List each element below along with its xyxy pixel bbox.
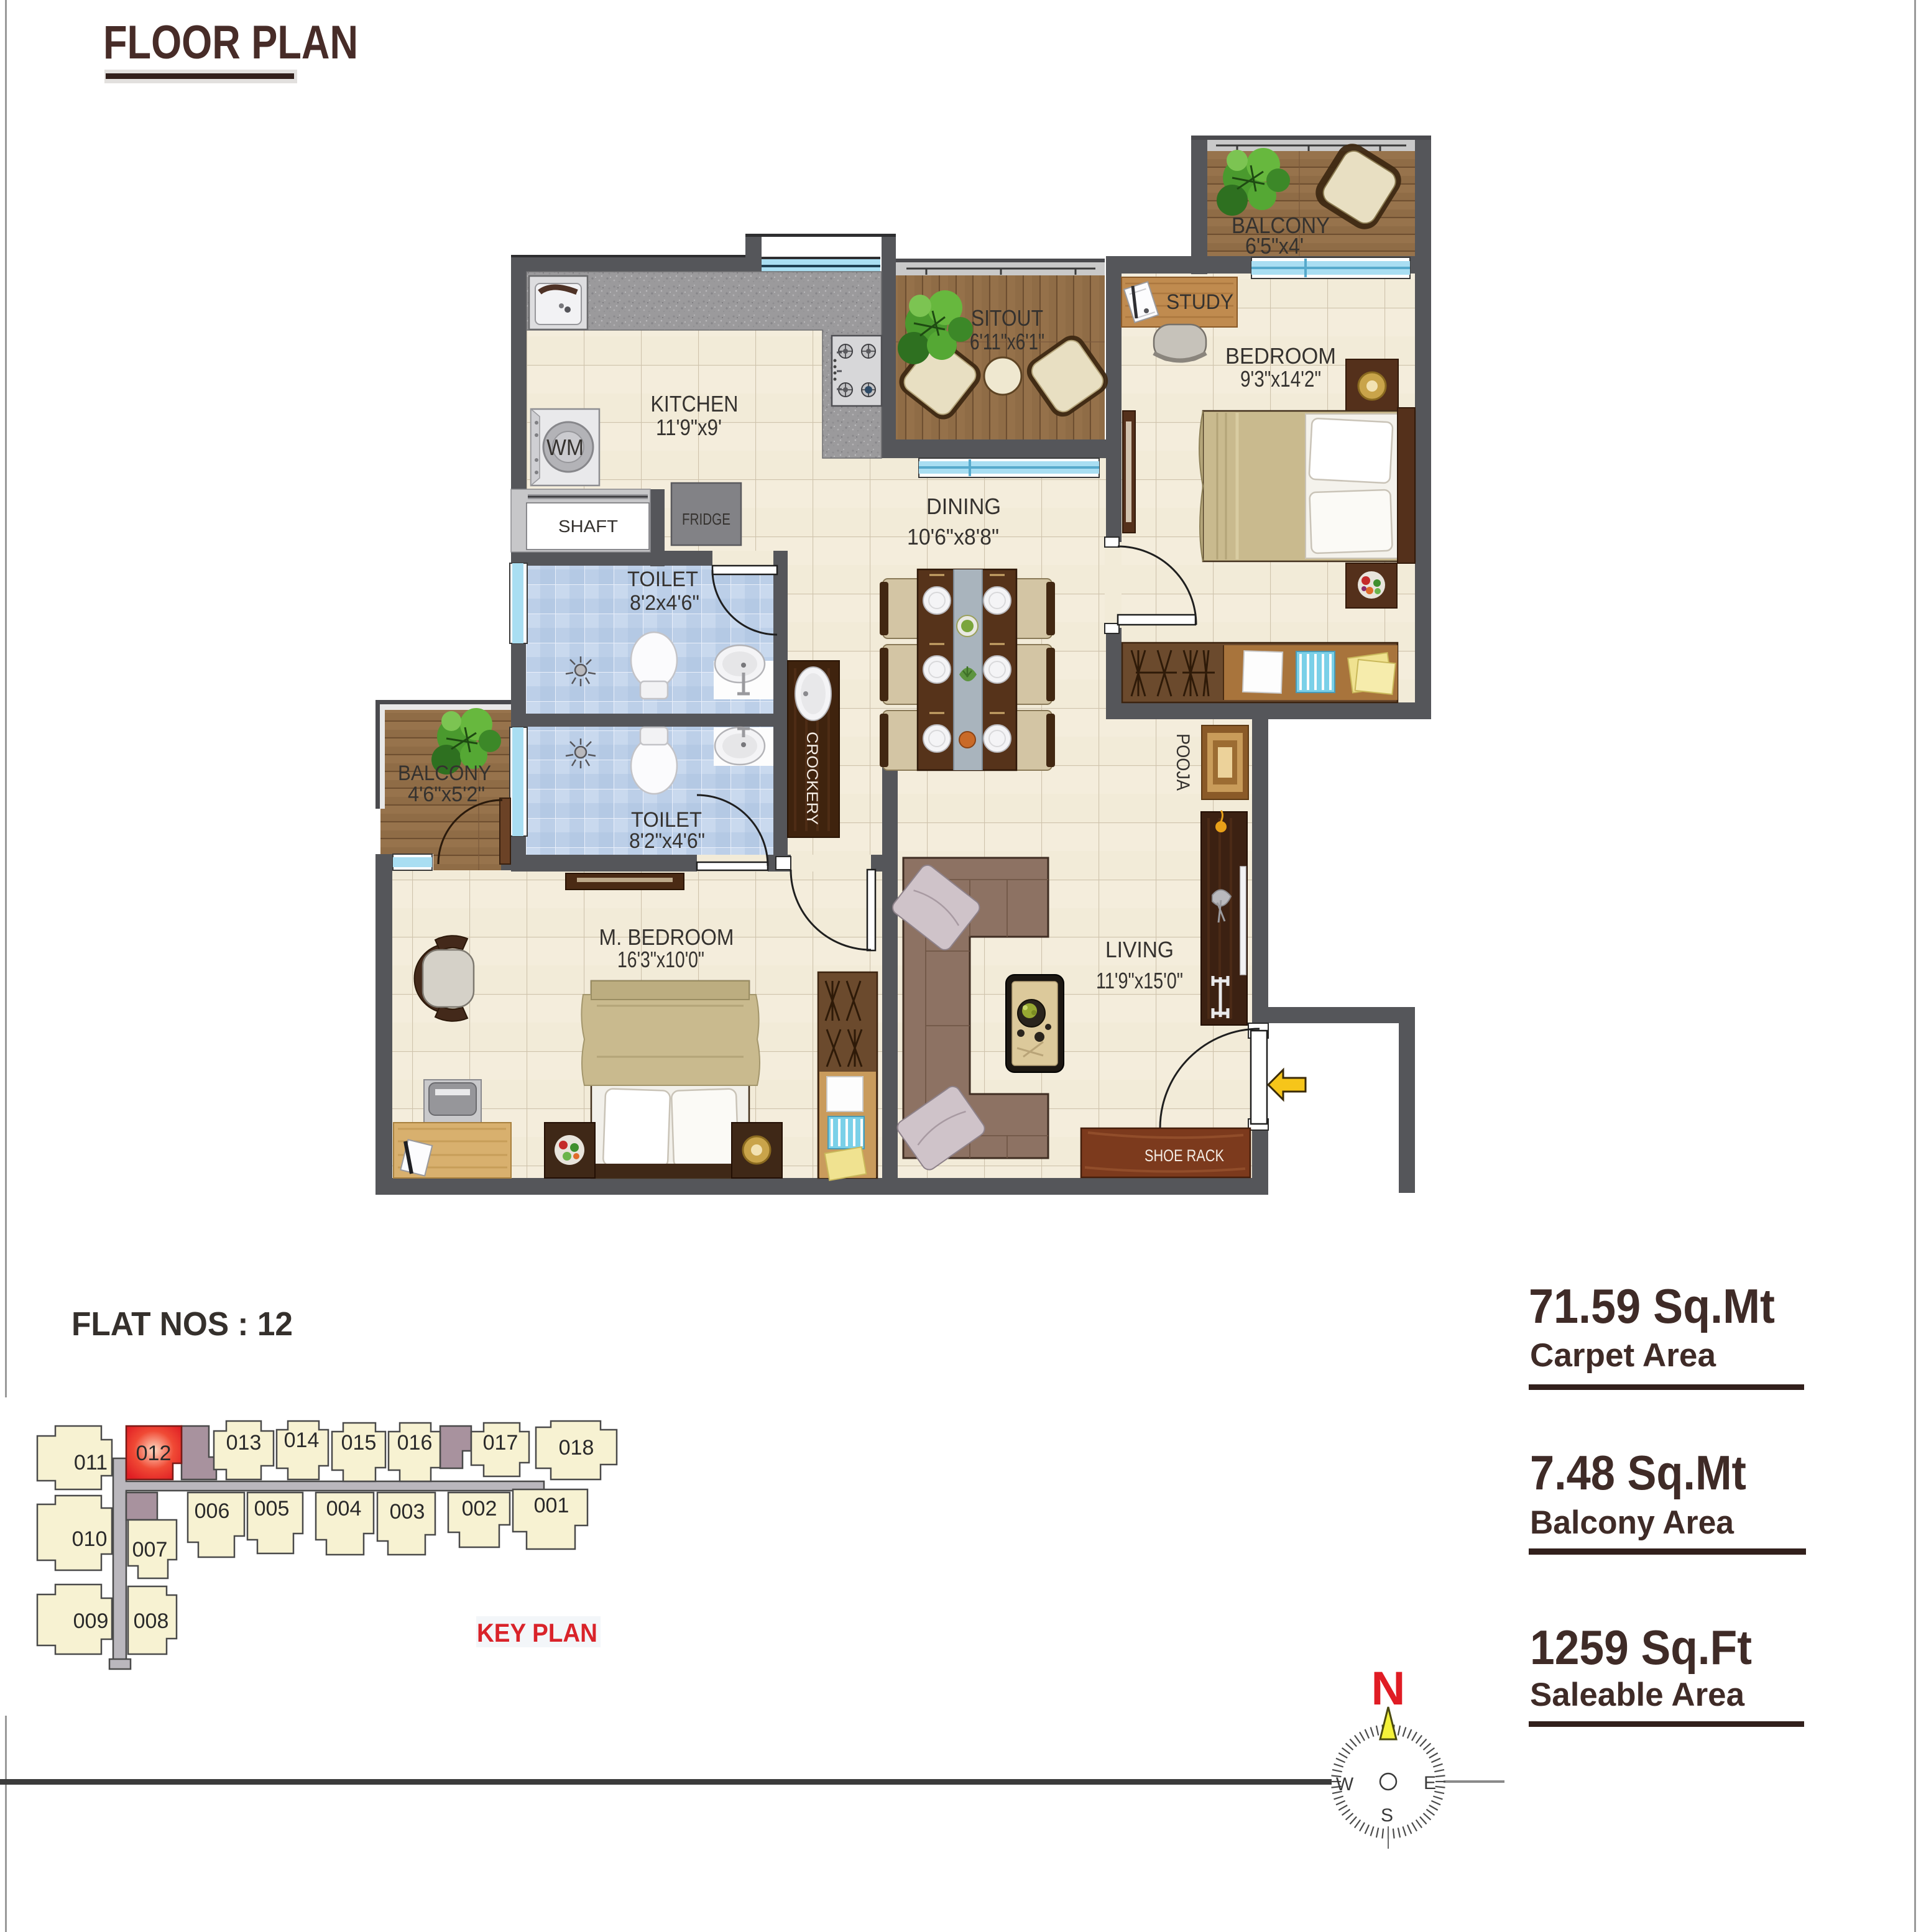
svg-text:005: 005 xyxy=(254,1497,290,1520)
svg-text:SHAFT: SHAFT xyxy=(558,517,618,536)
svg-text:10'6"x8'8": 10'6"x8'8" xyxy=(907,524,999,550)
svg-text:TOILET: TOILET xyxy=(627,568,698,591)
svg-text:SITOUT: SITOUT xyxy=(971,305,1043,331)
svg-text:FLAT NOS : 12: FLAT NOS : 12 xyxy=(71,1305,293,1343)
svg-text:013: 013 xyxy=(226,1431,262,1455)
svg-text:SHOE RACK: SHOE RACK xyxy=(1145,1146,1224,1165)
svg-text:012: 012 xyxy=(136,1442,172,1465)
svg-text:002: 002 xyxy=(462,1497,497,1520)
svg-text:011: 011 xyxy=(74,1451,108,1474)
svg-text:11'9"x9': 11'9"x9' xyxy=(656,415,722,440)
svg-text:BEDROOM: BEDROOM xyxy=(1225,343,1336,369)
svg-text:CROCKERY: CROCKERY xyxy=(803,732,821,825)
svg-text:016: 016 xyxy=(397,1431,433,1455)
svg-text:006: 006 xyxy=(195,1499,230,1523)
svg-text:11'9"x15'0": 11'9"x15'0" xyxy=(1096,968,1183,993)
svg-text:W: W xyxy=(1336,1774,1354,1795)
svg-text:KITCHEN: KITCHEN xyxy=(651,391,739,416)
svg-text:8'2"x4'6": 8'2"x4'6" xyxy=(629,829,705,853)
svg-text:004: 004 xyxy=(326,1497,362,1520)
svg-text:001: 001 xyxy=(534,1494,569,1517)
svg-text:015: 015 xyxy=(341,1431,377,1455)
svg-text:014: 014 xyxy=(284,1428,320,1452)
svg-text:009: 009 xyxy=(73,1609,109,1633)
svg-text:008: 008 xyxy=(134,1609,169,1633)
svg-text:S: S xyxy=(1381,1805,1393,1826)
svg-text:DINING: DINING xyxy=(926,494,1001,519)
svg-text:POOJA: POOJA xyxy=(1172,734,1193,791)
svg-text:STUDY: STUDY xyxy=(1166,290,1233,314)
svg-text:E: E xyxy=(1424,1773,1436,1793)
svg-text:018: 018 xyxy=(559,1436,594,1460)
svg-text:1259 Sq.Ft: 1259 Sq.Ft xyxy=(1530,1620,1752,1675)
svg-text:8'2x4'6": 8'2x4'6" xyxy=(630,591,699,615)
svg-text:Balcony Area: Balcony Area xyxy=(1530,1504,1734,1541)
svg-text:4'6"x5'2": 4'6"x5'2" xyxy=(408,783,485,806)
svg-text:9'3"x14'2": 9'3"x14'2" xyxy=(1240,366,1321,392)
svg-text:003: 003 xyxy=(390,1500,425,1524)
svg-text:KEY PLAN: KEY PLAN xyxy=(477,1618,597,1647)
svg-text:007: 007 xyxy=(132,1538,168,1562)
svg-text:TOILET: TOILET xyxy=(631,808,702,832)
svg-text:16'3"x10'0": 16'3"x10'0" xyxy=(617,947,704,972)
svg-text:71.59 Sq.Mt: 71.59 Sq.Mt xyxy=(1529,1279,1775,1333)
svg-text:LIVING: LIVING xyxy=(1105,937,1174,962)
svg-text:6'5"x4': 6'5"x4' xyxy=(1245,233,1304,259)
svg-text:FLOOR PLAN: FLOOR PLAN xyxy=(103,16,358,69)
svg-text:Saleable Area: Saleable Area xyxy=(1530,1677,1745,1713)
svg-text:6'11"x6'1": 6'11"x6'1" xyxy=(970,329,1044,354)
svg-text:WM: WM xyxy=(546,435,584,460)
svg-text:7.48 Sq.Mt: 7.48 Sq.Mt xyxy=(1530,1445,1746,1500)
svg-text:Carpet Area: Carpet Area xyxy=(1530,1337,1716,1374)
svg-text:BALCONY: BALCONY xyxy=(398,761,491,785)
svg-text:M. BEDROOM: M. BEDROOM xyxy=(599,924,734,950)
svg-text:FRIDGE: FRIDGE xyxy=(682,510,730,528)
svg-text:017: 017 xyxy=(483,1431,518,1455)
svg-text:010: 010 xyxy=(72,1527,108,1551)
